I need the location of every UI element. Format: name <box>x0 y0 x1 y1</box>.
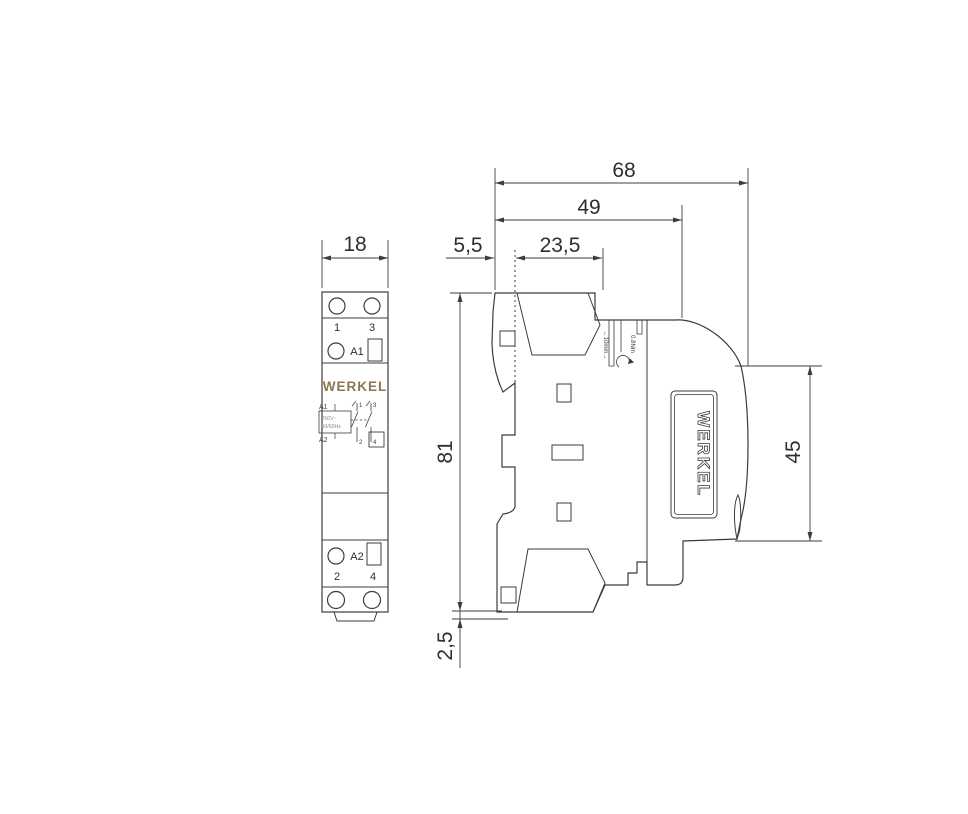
rail-clip-claw <box>734 495 740 539</box>
wiring-schematic: A1 250V~ 50/60Hz A2 1 3 <box>319 401 384 447</box>
terminal-label-4: 4 <box>370 571 376 583</box>
terminal-funnel-bottom <box>517 549 605 612</box>
technical-drawing: 18 1 3 A1 WERKEL A1 250V~ 50/60Hz <box>0 0 968 814</box>
side-view: ←10mm→ 0.8Nm WERKEL 68 49 <box>434 159 822 668</box>
front-width-dimension: 18 <box>322 233 388 288</box>
coil-terminal-a2 <box>328 548 344 564</box>
front-view: 18 1 3 A1 WERKEL A1 250V~ 50/60Hz <box>319 233 388 621</box>
indicator-window-bottom <box>367 543 381 565</box>
dim-23-5: 23,5 <box>540 234 581 257</box>
brand-logo-front: WERKEL <box>323 379 388 394</box>
dim-front-offsets: 5,5 23,5 <box>446 234 603 290</box>
rating-voltage: 250V~ <box>322 416 337 422</box>
rating-frequency: 50/60Hz <box>322 424 342 430</box>
terminal-label-3: 3 <box>369 322 375 334</box>
terminal-screw-top-right <box>364 298 380 314</box>
dim-81: 81 <box>434 440 457 463</box>
dim-45: 45 <box>782 440 805 463</box>
dim-overall-depth: 68 <box>495 159 748 366</box>
coil-terminal-a1 <box>328 343 344 359</box>
terminal-screw-top-left <box>329 298 345 314</box>
torque-label: 0.8Nm <box>629 335 635 353</box>
schematic-a1-label: A1 <box>319 404 328 411</box>
brand-plate-side: WERKEL <box>671 391 717 518</box>
indicator-window-top <box>368 339 382 361</box>
terminal-screw-bottom-right <box>364 592 381 609</box>
coil-label-a2: A2 <box>350 551 363 563</box>
terminal-funnel-top <box>517 293 600 355</box>
terminal-detail: ←10mm→ 0.8Nm <box>602 320 642 367</box>
drawing-canvas: 18 1 3 A1 WERKEL A1 250V~ 50/60Hz <box>0 0 968 814</box>
terminal-label-1: 1 <box>334 322 340 334</box>
terminal-screw-bottom-left <box>328 592 345 609</box>
din-clip-tab <box>334 612 377 621</box>
coil-label-a1: A1 <box>350 346 363 358</box>
contact-1-2 <box>352 401 359 442</box>
dim-front-width: 18 <box>343 233 366 256</box>
dim-49: 49 <box>577 196 600 219</box>
brand-logo-side: WERKEL <box>694 411 713 497</box>
dim-68: 68 <box>612 159 635 182</box>
schematic-a2-label: A2 <box>319 437 328 444</box>
dim-5-5: 5,5 <box>453 234 482 257</box>
torque-arrow-icon <box>617 355 630 367</box>
front-body <box>322 292 388 621</box>
terminal-label-2: 2 <box>334 571 340 583</box>
contact-label-1: 1 <box>359 403 363 409</box>
contact-label-3: 3 <box>373 403 377 409</box>
contact-label-2: 2 <box>359 440 363 446</box>
contact-label-4: 4 <box>373 440 377 446</box>
dim-2-5: 2,5 <box>434 631 457 660</box>
strip-length-label: ←10mm→ <box>602 331 608 360</box>
